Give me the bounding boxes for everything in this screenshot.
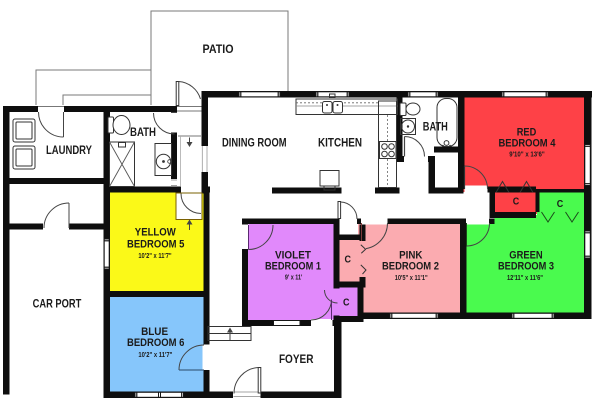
- svg-text:C: C: [345, 253, 352, 265]
- svg-text:PINK: PINK: [399, 250, 422, 262]
- svg-text:10'2" x 11'7": 10'2" x 11'7": [138, 352, 172, 359]
- svg-text:BEDROOM 5: BEDROOM 5: [127, 239, 184, 251]
- svg-text:10'5" x 11'1": 10'5" x 11'1": [395, 275, 428, 282]
- svg-text:FOYER: FOYER: [279, 352, 314, 366]
- svg-text:YELLOW: YELLOW: [135, 227, 177, 239]
- svg-text:GREEN: GREEN: [509, 249, 542, 261]
- svg-text:BATH: BATH: [130, 125, 156, 139]
- svg-text:10'2" x 11'7": 10'2" x 11'7": [138, 253, 171, 260]
- svg-text:C: C: [343, 297, 350, 309]
- svg-text:9'10" x 13'6": 9'10" x 13'6": [509, 152, 545, 159]
- svg-text:CAR PORT: CAR PORT: [33, 297, 82, 311]
- svg-text:C: C: [557, 198, 564, 210]
- svg-text:PATIO: PATIO: [203, 42, 234, 56]
- svg-text:LAUNDRY: LAUNDRY: [46, 143, 92, 157]
- svg-text:BEDROOM 4: BEDROOM 4: [499, 137, 557, 149]
- svg-text:KITCHEN: KITCHEN: [318, 136, 362, 150]
- svg-text:C: C: [513, 196, 520, 208]
- svg-text:BEDROOM 3: BEDROOM 3: [498, 261, 554, 273]
- svg-text:BEDROOM 2: BEDROOM 2: [382, 261, 439, 273]
- svg-text:9' x 11': 9' x 11': [285, 275, 303, 282]
- svg-text:BATH: BATH: [423, 119, 448, 133]
- svg-text:12'11" x 11'6": 12'11" x 11'6": [507, 275, 543, 282]
- svg-text:BEDROOM 6: BEDROOM 6: [127, 337, 184, 349]
- svg-text:BEDROOM 1: BEDROOM 1: [265, 260, 321, 272]
- svg-text:DINING ROOM: DINING ROOM: [222, 136, 287, 150]
